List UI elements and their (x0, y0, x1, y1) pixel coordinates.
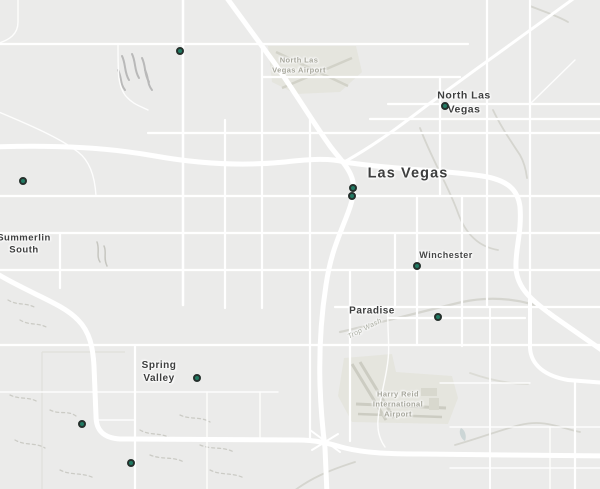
map-marker[interactable] (349, 184, 357, 192)
map-marker[interactable] (127, 459, 135, 467)
map-canvas[interactable]: North Las Vegas Airport North Las Vegas … (0, 0, 600, 489)
map-marker[interactable] (348, 192, 356, 200)
map-marker[interactable] (176, 47, 184, 55)
map-marker[interactable] (434, 313, 442, 321)
map-marker[interactable] (193, 374, 201, 382)
map-marker[interactable] (441, 102, 449, 110)
map-marker[interactable] (413, 262, 421, 270)
map-marker[interactable] (19, 177, 27, 185)
markers-layer (0, 0, 600, 489)
map-marker[interactable] (78, 420, 86, 428)
